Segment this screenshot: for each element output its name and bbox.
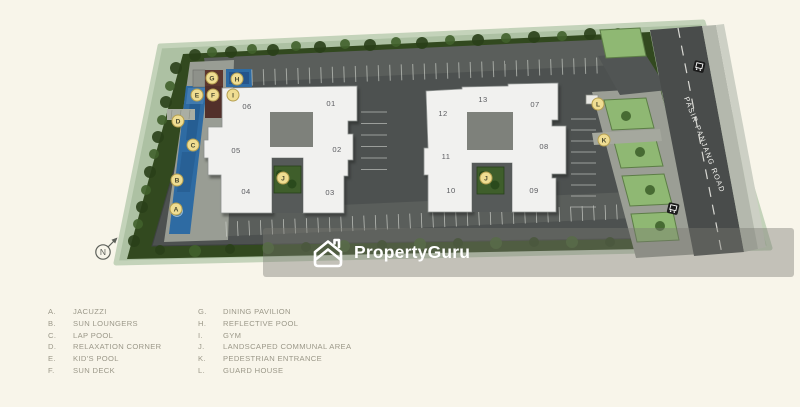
legend-item: D.RELAXATION CORNER <box>48 341 162 353</box>
marker-j-west: J <box>277 172 289 184</box>
legend-item: E.KID'S POOL <box>48 353 162 365</box>
svg-text:C: C <box>191 142 196 149</box>
svg-text:A: A <box>174 206 179 213</box>
north-label: N <box>100 247 106 257</box>
building-label-05: 05 <box>231 146 240 155</box>
svg-text:F: F <box>211 92 215 99</box>
marker-j-east: J <box>480 172 492 184</box>
marker-d: D <box>172 115 184 127</box>
legend-item: H.REFLECTIVE POOL <box>198 318 351 330</box>
marker-l: L <box>592 98 604 110</box>
marker-c: C <box>187 139 199 151</box>
building-label-04: 04 <box>241 187 250 196</box>
svg-text:D: D <box>176 118 181 125</box>
building-label-12: 12 <box>438 109 447 118</box>
marker-g: G <box>206 72 218 84</box>
marker-i: I <box>227 89 239 101</box>
building-label-07: 07 <box>530 100 539 109</box>
legend-item: K.PEDESTRIAN ENTRANCE <box>198 353 351 365</box>
svg-text:B: B <box>175 177 180 184</box>
east-courtyard <box>467 112 513 150</box>
svg-text:E: E <box>195 92 200 99</box>
legend-item: B.SUN LOUNGERS <box>48 318 162 330</box>
marker-f: F <box>207 89 219 101</box>
legend-column-2: G.DINING PAVILION H.REFLECTIVE POOL I.GY… <box>198 306 351 376</box>
building-label-02: 02 <box>332 145 341 154</box>
dining-pavilion <box>193 70 205 87</box>
svg-text:J: J <box>484 175 488 182</box>
building-label-10: 10 <box>446 186 455 195</box>
marker-b: B <box>171 174 183 186</box>
watermark-bar: PropertyGuru <box>263 228 794 277</box>
legend-item: L.GUARD HOUSE <box>198 364 351 376</box>
legend-item: A.JACUZZI <box>48 306 162 318</box>
legend-item: C.LAP POOL <box>48 329 162 341</box>
legend-column-1: A.JACUZZI B.SUN LOUNGERS C.LAP POOL D.RE… <box>48 306 162 376</box>
legend-item: J.LANDSCAPED COMMUNAL AREA <box>198 341 351 353</box>
marker-h: H <box>231 73 243 85</box>
building-label-09: 09 <box>529 186 538 195</box>
svg-text:I: I <box>232 92 234 99</box>
west-courtyard <box>270 112 313 147</box>
watermark-brand: PropertyGuru <box>354 242 470 263</box>
building-label-13: 13 <box>478 95 487 104</box>
building-label-11: 11 <box>442 152 451 161</box>
marker-a: A <box>170 203 182 215</box>
svg-text:K: K <box>602 137 607 144</box>
propertyguru-logo-icon <box>310 237 346 269</box>
marker-e: E <box>191 89 203 101</box>
legend-item: I.GYM <box>198 329 351 341</box>
marker-k: K <box>598 134 610 146</box>
svg-text:H: H <box>235 76 240 83</box>
building-label-01: 01 <box>326 99 335 108</box>
building-label-08: 08 <box>539 142 548 151</box>
legend-item: G.DINING PAVILION <box>198 306 351 318</box>
site-plan-page: 06 01 05 02 04 03 12 13 07 11 08 10 09 <box>0 0 800 407</box>
building-label-03: 03 <box>325 188 334 197</box>
svg-text:J: J <box>281 175 285 182</box>
legend-item: F.SUN DECK <box>48 364 162 376</box>
building-label-06: 06 <box>242 102 251 111</box>
svg-text:L: L <box>596 101 600 108</box>
svg-text:G: G <box>209 75 214 82</box>
